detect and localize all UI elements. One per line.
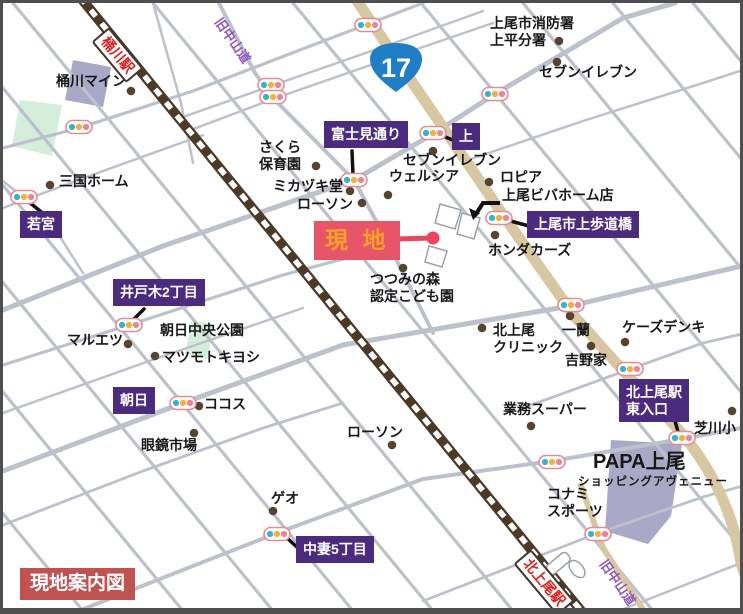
label-ichiran: 一蘭	[562, 322, 590, 339]
label-kitaageo-east-entrance: 北上尾駅 東入口	[619, 379, 689, 422]
label-cocos: ココス	[204, 396, 246, 413]
label-lawson-center: ローソン	[297, 196, 353, 213]
label-welcia: ウェルシア	[389, 168, 459, 185]
label-ks-denki: ケーズデンキ	[622, 319, 705, 336]
label-ageo-fire-station: 上尾市消防署 上平分署	[490, 15, 574, 48]
label-asahi-signal: 朝日	[113, 387, 155, 414]
label-site-marker-box: 現 地	[314, 221, 400, 260]
label-honda-cars: ホンダカーズ	[488, 242, 571, 259]
label-legend: 現地案内図	[20, 568, 135, 600]
label-mikuni-home: 三国ホーム	[59, 173, 129, 190]
label-kyu-nakasendo-north: 旧中山道	[211, 15, 253, 66]
label-wakamiya-signal: 若宮	[20, 211, 62, 238]
label-papa-ageo-sub: ショッピングアヴェニュー	[578, 476, 728, 490]
label-nakazuma-5chome: 中妻5丁目	[296, 536, 374, 563]
label-sakura-hoikuen: さくら 保育園	[259, 139, 301, 172]
label-megane-ichiba: 眼鏡市場	[141, 437, 197, 454]
label-kitaageo-station: 北上尾駅	[514, 549, 575, 614]
label-matsumoto-kiyoshi: マツモトキヨシ	[162, 349, 260, 366]
label-kitaageo-clinic: 北上尾 クリニック	[493, 322, 563, 355]
label-lawson-south: ローソン	[347, 424, 403, 441]
label-ageo-hodokyo: 上尾市上歩道橋	[527, 211, 639, 238]
label-lopia: ロピア	[500, 169, 542, 186]
map-labels-layer: 桶川マイン三国ホーム上尾市消防署 上平分署セブンイレブンロピア上尾ビバホーム店さ…	[3, 3, 740, 608]
label-idoki-2chome: 井戸木2丁目	[113, 279, 205, 306]
label-mikazuki-do: ミカヅキ堂	[273, 178, 343, 195]
label-tsutsumi-kodomoen: つつみの森 認定こども園	[370, 271, 454, 304]
label-shibakawa-elementary: 芝川小	[694, 420, 736, 437]
label-yoshinoya: 吉野家	[565, 352, 607, 369]
label-seven-eleven-center: セブンイレブン	[403, 152, 501, 169]
label-fujimi-dori: 富士見通り	[324, 121, 408, 148]
label-ageo-viva-home: 上尾ビバホーム店	[502, 187, 614, 204]
label-kami-signal: 上	[452, 123, 480, 150]
label-asahi-chuo-park: 朝日中央公園	[160, 322, 244, 339]
label-konami-sports: コナミ スポーツ	[547, 486, 603, 519]
site-guide-map: 17 桶川マイン三国ホーム上尾市消防署 上平分署セブンイレブンロピア上尾ビバホー…	[0, 0, 743, 614]
label-okegawa-mine: 桶川マイン	[56, 73, 126, 90]
label-seven-eleven-northeast: セブンイレブン	[539, 64, 637, 81]
label-maruetsu: マルエツ	[67, 332, 123, 349]
label-geo: ゲオ	[271, 490, 299, 507]
label-kyu-nakasendo-south: 旧中山道	[596, 557, 638, 608]
label-gyomu-super: 業務スーパー	[503, 401, 587, 418]
label-papa-ageo: PAPA上尾	[593, 451, 686, 475]
